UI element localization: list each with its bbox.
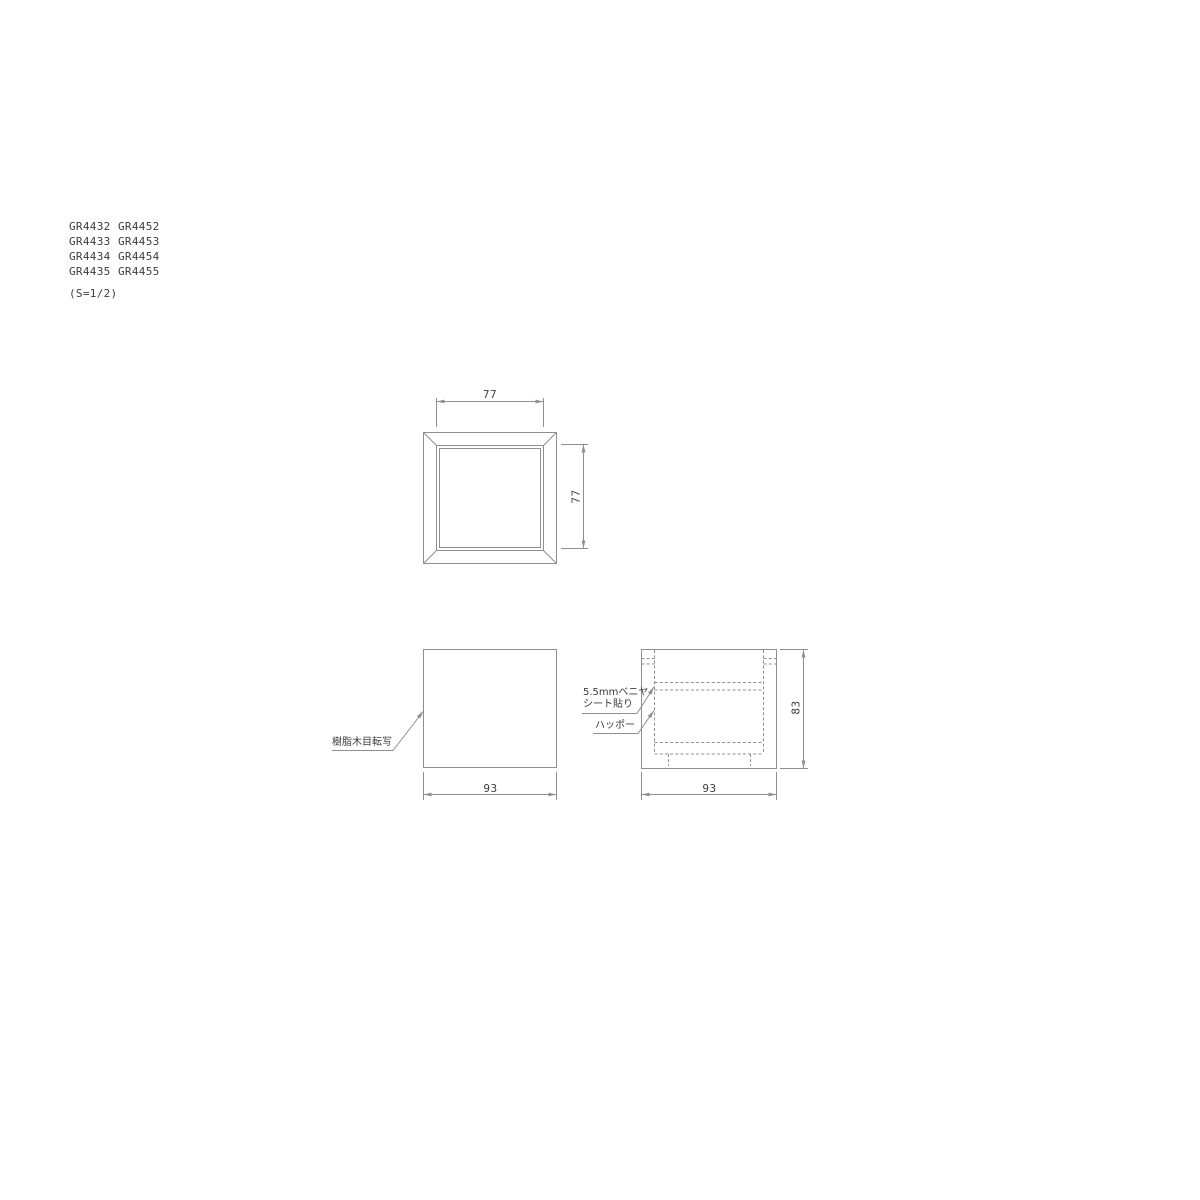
hidden-side-walls: [655, 650, 764, 754]
hidden-plywood-sheet: [655, 683, 764, 691]
hidden-bottom-panel: [655, 743, 764, 755]
hidden-top-rabbet: [642, 659, 777, 665]
finish-label: 樹脂木目転写: [332, 737, 392, 749]
dimension-arrow: [802, 650, 806, 658]
hidden-bottom-ticks: [669, 754, 751, 766]
dimension-arrow: [424, 793, 432, 797]
front-view: [424, 650, 557, 768]
dimension-arrow: [549, 793, 557, 797]
dimension-text-side-height: 83: [790, 690, 803, 726]
dimension-arrow: [536, 400, 544, 404]
plywood-label-line2: シート貼り: [583, 699, 643, 711]
dimension-arrow: [642, 793, 650, 797]
top-view-outer-edge: [424, 433, 557, 564]
dimension-arrow: [437, 400, 445, 404]
foam-label: ハッポー: [595, 720, 641, 732]
top-view-opening-edge: [437, 446, 544, 551]
top-view: [424, 433, 557, 564]
dimension-arrow: [582, 541, 586, 549]
plywood-label-line1: 5.5mmベニヤ: [583, 687, 643, 699]
dimension-text-side-width: 93: [691, 782, 728, 795]
dimension-arrow: [802, 761, 806, 769]
leader-arrow: [648, 711, 654, 719]
dimension-text-top-height: 77: [570, 479, 583, 515]
top-view-miter-lines: [424, 433, 557, 564]
side-view-outline: [642, 650, 777, 769]
top-view-lip-edge: [440, 449, 541, 548]
side-view: [642, 650, 777, 769]
dimension-text-top-width: 77: [472, 388, 508, 401]
extension-lines: [437, 398, 544, 427]
dimension-arrow: [769, 793, 777, 797]
drawing-sheet: GR4432 GR4452 GR4433 GR4453 GR4434 GR445…: [0, 0, 1200, 1200]
top-view-width-dimension: [437, 398, 544, 427]
front-view-outline: [424, 650, 557, 768]
leader-arrow: [648, 687, 654, 695]
dimension-text-front-width: 93: [472, 782, 509, 795]
dimension-arrow: [582, 445, 586, 453]
cad-linework: [0, 0, 1200, 1200]
